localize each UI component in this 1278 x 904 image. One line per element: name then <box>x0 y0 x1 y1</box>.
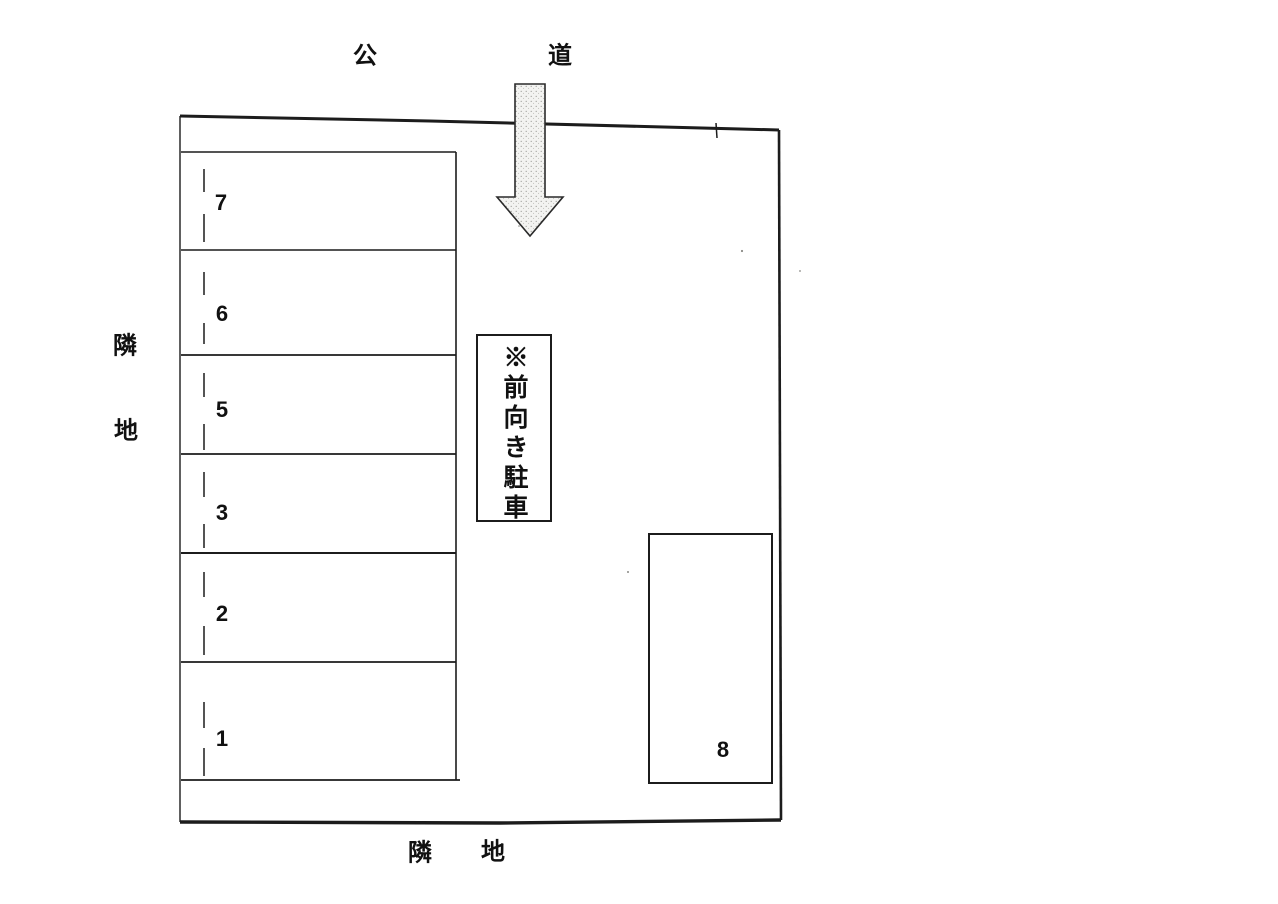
road-label-char-1: 公 <box>353 36 377 71</box>
road-label-char-2: 道 <box>548 36 572 71</box>
parking-site-plan: 公 道 隣 地 隣 地 ※前向き駐車 7 6 5 3 2 1 8 <box>0 0 1278 904</box>
entrance-arrow-icon <box>497 84 563 236</box>
adjacent-left-char-2: 地 <box>114 411 138 446</box>
stall-number-2: 2 <box>216 601 228 627</box>
stall-number-7: 7 <box>215 190 227 216</box>
site-plan-linework <box>0 0 1278 904</box>
stall-number-6: 6 <box>216 301 228 327</box>
property-boundary <box>180 116 781 823</box>
adjacent-left-char-1: 隣 <box>113 326 137 361</box>
stall-number-8: 8 <box>717 737 729 763</box>
adjacent-bottom-char-1: 隣 <box>408 833 432 868</box>
front-facing-parking-note: ※前向き駐車 <box>496 344 532 524</box>
adjacent-bottom-char-2: 地 <box>481 832 505 867</box>
stall-column-left <box>181 152 460 780</box>
scan-noise <box>518 225 801 573</box>
stall-8-outline <box>649 534 772 783</box>
stall-number-5: 5 <box>216 397 228 423</box>
stall-number-3: 3 <box>216 500 228 526</box>
stall-number-1: 1 <box>216 726 228 752</box>
boundary-tick <box>716 123 717 138</box>
